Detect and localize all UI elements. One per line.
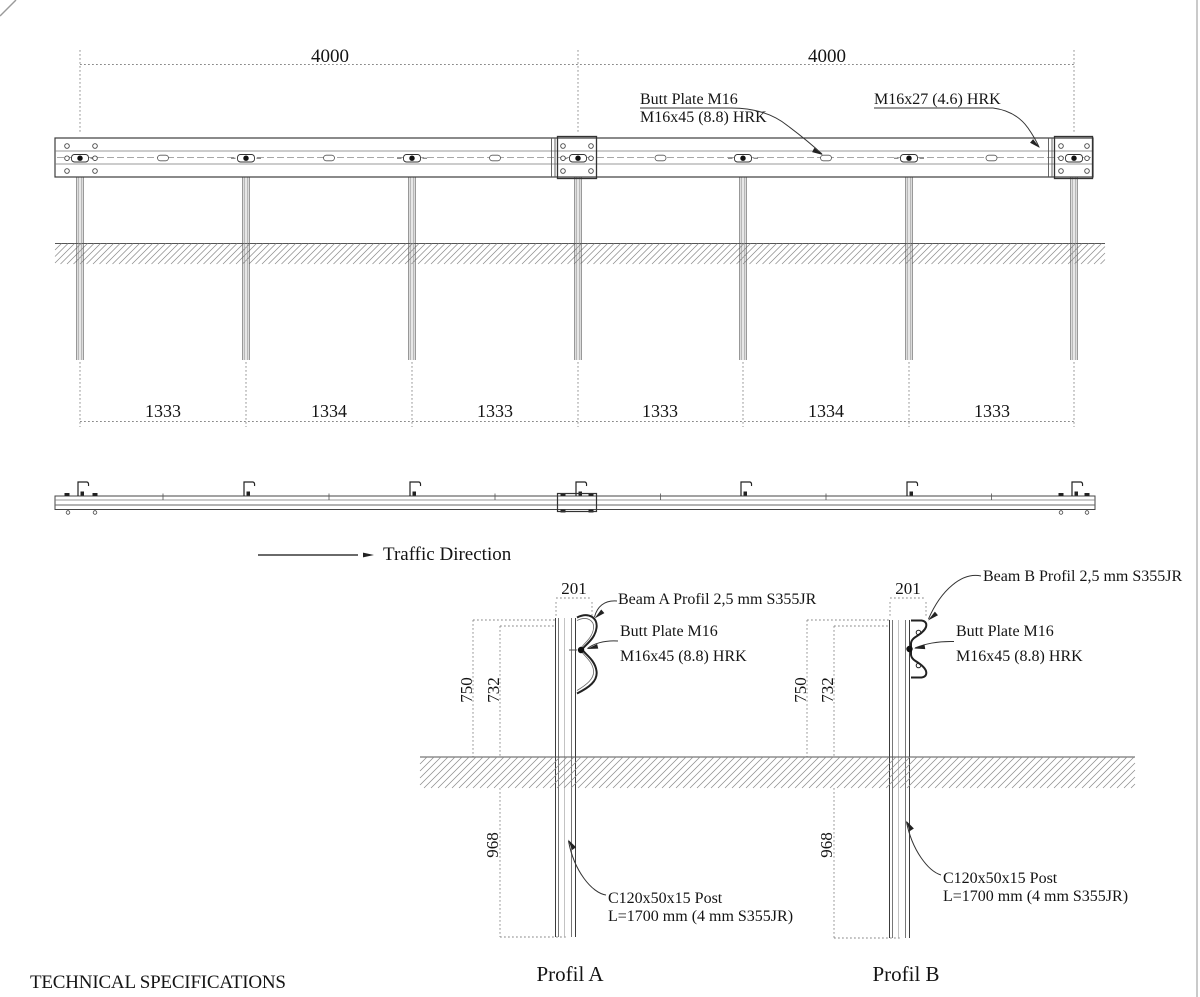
traffic-direction: Traffic Direction (258, 544, 512, 565)
detail-a-embed-dim: 968 (483, 832, 502, 858)
leader-arrowheads (363, 139, 1040, 850)
detail-b-bolt (906, 646, 912, 652)
detail-b-butt-plate-line1: Butt Plate M16 (956, 623, 1054, 640)
detail-a-post-label-line1: C120x50x15 Post (608, 890, 723, 907)
detail-a-beam-height-dim: 732 (484, 677, 503, 703)
detail-a-beam-section (569, 615, 597, 693)
detail-a-height-dim: 750 (457, 677, 476, 703)
detail-a-post (556, 618, 576, 937)
page-title: TECHNICAL SPECIFICATIONS (30, 972, 286, 993)
elevation-top-dimension: 4000 4000 (80, 46, 1074, 134)
detail-a-post-label-line2: L=1700 mm (4 mm S355JR) (608, 908, 793, 925)
detail-a-butt-plate-line2: M16x45 (8.8) HRK (620, 648, 747, 665)
bolt-label: M16x27 (4.6) HRK (874, 91, 1001, 108)
plan-view (55, 482, 1095, 514)
detail-b-beam-label: Beam B Profil 2,5 mm S355JR (983, 568, 1182, 585)
dim-4000-right: 4000 (808, 46, 846, 67)
detail-b-post (890, 620, 910, 938)
elevation-view: 4000 4000 Butt Plate M16 M16x45 (55, 46, 1105, 427)
detail-a-butt-plate-line1: Butt Plate M16 (620, 623, 718, 640)
detail-b-height-dim: 750 (791, 677, 810, 703)
span-dim-1: 1333 (145, 401, 181, 421)
ground-hatch-elevation (55, 244, 1105, 265)
detail-a-width-dim: 201 (561, 579, 587, 598)
detail-profil-b: 201 750 732 968 Beam B Profil 2,5 mm S35… (791, 568, 1182, 986)
detail-a-beam-label: Beam A Profil 2,5 mm S355JR (618, 591, 817, 608)
detail-a-bolt (578, 647, 584, 653)
dim-4000-left: 4000 (311, 46, 349, 67)
detail-b-post-label-line1: C120x50x15 Post (943, 870, 1058, 887)
butt-plate-label-line1: Butt Plate M16 (640, 91, 738, 108)
butt-plate-label-line2: M16x45 (8.8) HRK (640, 109, 767, 126)
drawing-sheet: 4000 4000 Butt Plate M16 M16x45 (0, 0, 1200, 997)
detail-b-butt-plate-line2: M16x45 (8.8) HRK (956, 648, 1083, 665)
span-dim-6: 1333 (974, 401, 1010, 421)
detail-profil-a: 201 750 732 968 Beam A Profil 2,5 mm S35… (457, 579, 817, 986)
span-dim-2: 1334 (311, 401, 347, 421)
detail-b-title: Profil B (872, 962, 939, 986)
span-dim-3: 1333 (477, 401, 513, 421)
detail-b-embed-dim: 968 (817, 832, 836, 858)
guardrail-posts (77, 177, 1077, 360)
technical-drawing: 4000 4000 Butt Plate M16 M16x45 (0, 0, 1200, 997)
detail-a-title: Profil A (536, 962, 604, 986)
ground-hatch-details (420, 757, 1135, 788)
detail-b-width-dim: 201 (895, 579, 921, 598)
span-dimensions: 1333 1334 1333 1333 1334 1333 (80, 362, 1074, 427)
traffic-direction-label: Traffic Direction (383, 544, 512, 565)
span-dim-5: 1334 (808, 401, 844, 421)
span-dim-4: 1333 (642, 401, 678, 421)
detail-b-beam-height-dim: 732 (818, 677, 837, 703)
detail-b-post-label-line2: L=1700 mm (4 mm S355JR) (943, 888, 1128, 905)
